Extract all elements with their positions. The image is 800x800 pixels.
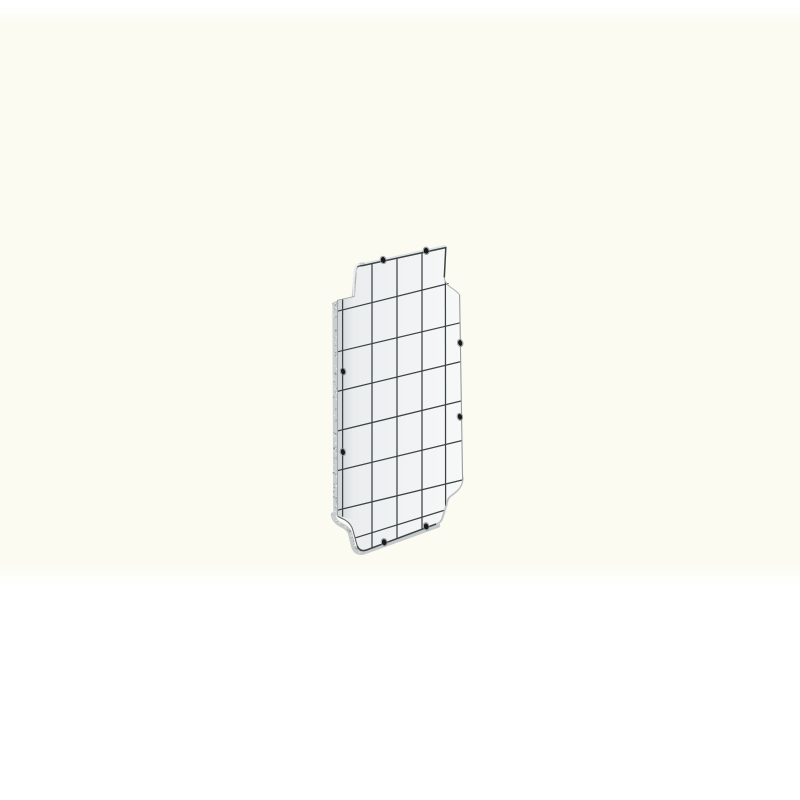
product-image — [0, 0, 800, 800]
mounting-plate-render — [0, 0, 800, 800]
plate-face-shading — [338, 297, 354, 520]
